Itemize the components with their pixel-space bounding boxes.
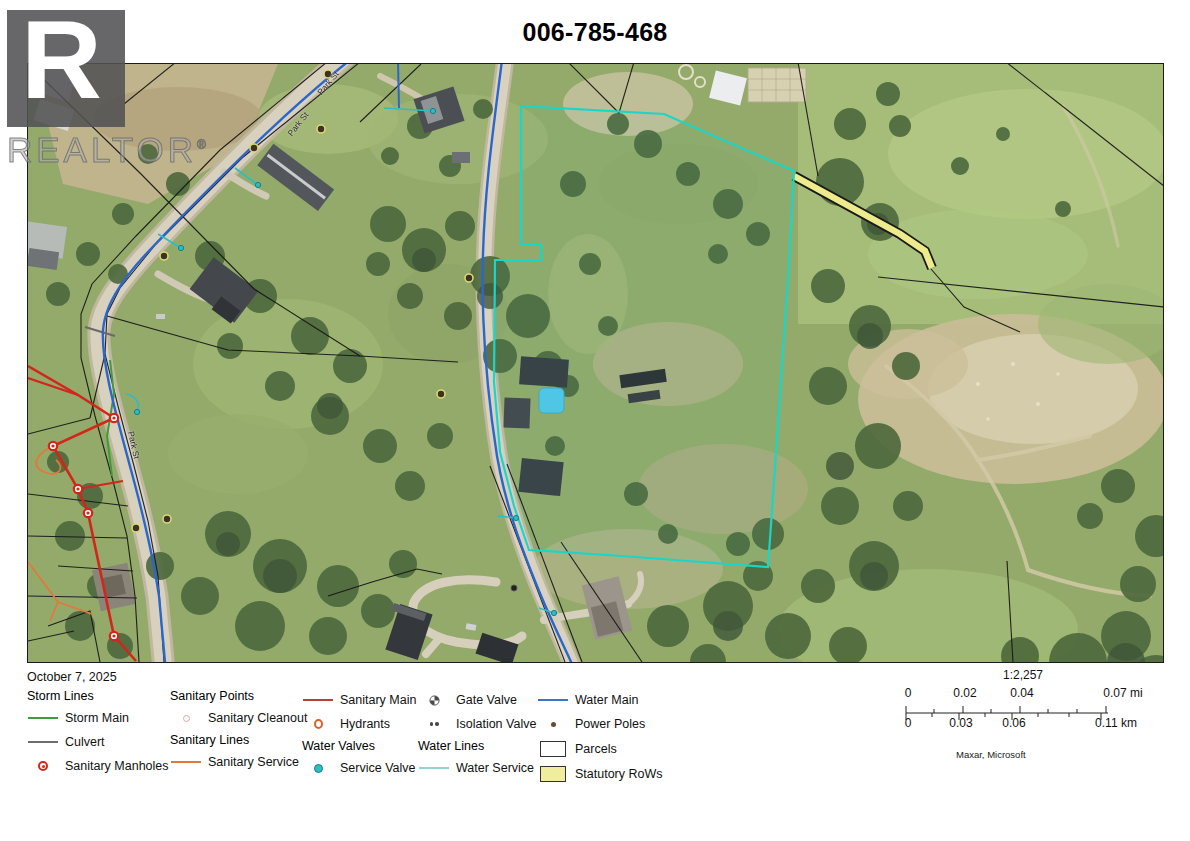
- legend-item: Storm Main: [27, 706, 169, 730]
- legend-item: Isolation Valve: [418, 712, 536, 736]
- parcel-swatch: [537, 741, 569, 757]
- legend-column-sanitary-points: Sanitary Points Sanitary Cleanout Sanita…: [170, 686, 307, 774]
- realtor-wordmark: REALTOR®: [7, 130, 206, 170]
- water-service-line-swatch: [418, 767, 450, 769]
- culvert-line-swatch: [27, 741, 59, 743]
- scale-mi-2: 0.04: [1010, 686, 1033, 700]
- sanitary-cleanout-icon: [170, 715, 202, 722]
- legend-item: Water Main: [537, 688, 663, 712]
- imagery-attribution: Maxar, Microsoft: [956, 749, 1026, 760]
- scale-mi-0: 0: [905, 686, 912, 700]
- legend-item: Water Service: [418, 756, 536, 780]
- map-date: October 7, 2025: [27, 670, 117, 684]
- legend-group-header: Water Valves: [302, 736, 416, 756]
- gate-valve-dot: [511, 585, 517, 591]
- legend-item: Culvert: [27, 730, 169, 754]
- legend-group-header: Sanitary Points: [170, 686, 307, 706]
- legend-item: Statutory RoWs: [537, 761, 663, 786]
- legend-group-header: Sanitary Lines: [170, 730, 307, 750]
- statutory-row-swatch: [537, 766, 569, 782]
- legend-column-storm: Storm Lines Storm Main Culvert Sanitary …: [27, 686, 169, 778]
- legend-item: Sanitary Manholes: [27, 754, 169, 778]
- scale-mi-3: 0.07 mi: [1103, 686, 1142, 700]
- legend-item: Sanitary Cleanout: [170, 706, 307, 730]
- legend-item: Gate Valve: [418, 688, 536, 712]
- legend-group-header: Storm Lines: [27, 686, 169, 706]
- realtor-logo-block: R: [7, 10, 125, 127]
- legend-item: Sanitary Main: [302, 688, 416, 712]
- legend-column-sanitary-water: Sanitary Main Hydrants Water Valves Serv…: [302, 688, 416, 780]
- realtor-watermark: R REALTOR®: [7, 10, 206, 170]
- water-main-line-swatch: [537, 699, 569, 701]
- scale-km-1: 0.03: [949, 716, 972, 730]
- registered-trademark-symbol: ®: [197, 138, 206, 152]
- scale-km-3: 0.11 km: [1095, 716, 1137, 730]
- scale-mi-1: 0.02: [953, 686, 976, 700]
- highlight-parcel-outline: [494, 106, 794, 567]
- legend-item: Sanitary Service: [170, 750, 307, 774]
- scale-ratio: 1:2,257: [898, 668, 1148, 682]
- legend-item: Hydrants: [302, 712, 416, 736]
- legend-group-header: Water Lines: [418, 736, 536, 756]
- storm-main-line-swatch: [27, 717, 59, 719]
- legend-item: Parcels: [537, 736, 663, 761]
- sanitary-main-line-swatch: [302, 699, 334, 701]
- legend-column-water-parcels: Water Main Power Poles Parcels Statutory…: [537, 688, 663, 786]
- realtor-logo-letter: R: [21, 4, 102, 116]
- legend-item: Service Valve: [302, 756, 416, 780]
- scale-km-0: 0: [905, 716, 912, 730]
- service-valve-icon: [302, 764, 334, 773]
- scale-km-2: 0.06: [1002, 716, 1025, 730]
- sanitary-manhole-icon: [27, 761, 59, 771]
- legend-column-valves-lines: Gate Valve Isolation Valve Water Lines W…: [418, 688, 536, 780]
- sanitary-service-line-swatch: [170, 761, 202, 763]
- gate-valve-icon: [418, 695, 450, 706]
- map-report-page: 006-785-468: [0, 0, 1190, 841]
- isolation-valve-icon: [418, 722, 450, 726]
- hydrant-icon: [302, 719, 334, 729]
- legend-item: Power Poles: [537, 712, 663, 736]
- power-pole-icon: [537, 722, 569, 727]
